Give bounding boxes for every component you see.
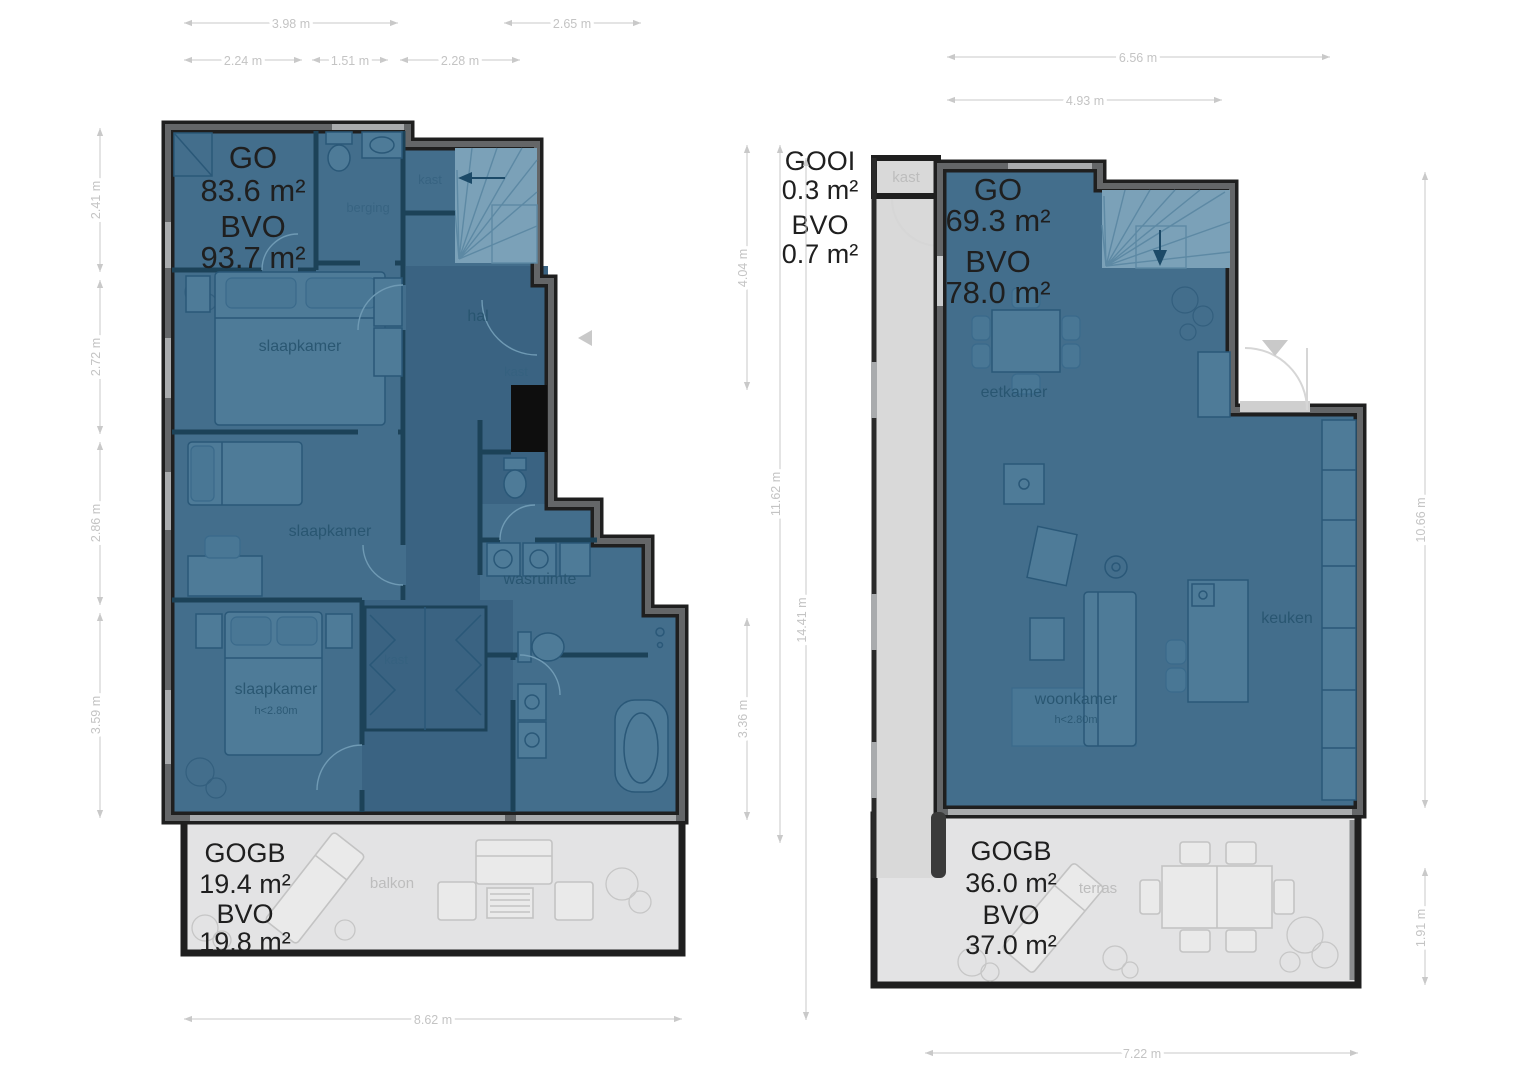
gooi-label: GOOI bbox=[785, 146, 856, 176]
left-go-label: GO bbox=[229, 140, 277, 175]
dim-224: 2.24 m bbox=[224, 54, 262, 68]
right-bvo-value: 78.0 m² bbox=[945, 275, 1050, 310]
dim-722: 7.22 m bbox=[1123, 1047, 1161, 1061]
gooi-area-labels: GOOI 0.3 m² BVO 0.7 m² bbox=[782, 146, 859, 269]
closet-top-label: kast bbox=[418, 172, 442, 187]
terrace-label: terras bbox=[1079, 880, 1117, 897]
storage-label: berging bbox=[346, 200, 389, 215]
gallery-wall-end bbox=[931, 812, 946, 878]
balcony: balkon GOGB 19.4 m² BVO 19.8 m² bbox=[184, 820, 682, 957]
dim-151: 1.51 m bbox=[331, 54, 369, 68]
living-label: woonkamer bbox=[1034, 691, 1118, 708]
laundry-label: wasruimte bbox=[503, 571, 577, 588]
balcony-bvo-label: BVO bbox=[216, 899, 273, 929]
dim-862: 8.62 m bbox=[414, 1013, 452, 1027]
balcony-label: balkon bbox=[370, 875, 414, 892]
left-go-value: 83.6 m² bbox=[200, 173, 305, 208]
dim-656: 6.56 m bbox=[1119, 51, 1157, 65]
dim-228: 2.28 m bbox=[441, 54, 479, 68]
dim-336: 3.36 m bbox=[736, 700, 750, 738]
floorplan-canvas: balkon GOGB 19.4 m² BVO 19.8 m² bbox=[0, 0, 1527, 1080]
hallway-lower bbox=[406, 504, 480, 600]
shaft bbox=[511, 385, 547, 452]
closet-shaft-label: kast bbox=[504, 364, 528, 379]
dim-286: 2.86 m bbox=[89, 504, 103, 542]
bedroom3-label: slaapkamer bbox=[235, 681, 318, 698]
closet-wardrobe-label: kast bbox=[384, 652, 408, 667]
entrance-arrow-left-plan bbox=[578, 330, 592, 346]
wall-cabinet bbox=[1198, 352, 1230, 417]
dim-1066: 10.66 m bbox=[1414, 497, 1428, 542]
entrance-arrow-right-plan bbox=[1262, 340, 1288, 356]
balcony-gogb-value: 19.4 m² bbox=[199, 869, 291, 899]
terrace-gogb-label: GOGB bbox=[970, 836, 1051, 866]
terrace: terras GOGB 36.0 m² BVO 37.0 m² bbox=[874, 815, 1358, 985]
hall-label: hal bbox=[467, 308, 488, 325]
dim-1441: 14.41 m bbox=[795, 597, 809, 642]
floorplan-svg: balkon GOGB 19.4 m² BVO 19.8 m² bbox=[0, 0, 1527, 1080]
stairs-right bbox=[1102, 190, 1230, 268]
gallery: kast bbox=[874, 158, 940, 878]
dim-404: 4.04 m bbox=[736, 249, 750, 287]
left-bvo-label: BVO bbox=[220, 209, 285, 244]
dim-493: 4.93 m bbox=[1066, 94, 1104, 108]
bedroom3-height-label: h<2.80m bbox=[254, 705, 297, 717]
dim-359: 3.59 m bbox=[89, 696, 103, 734]
gooi-bvo-label: BVO bbox=[791, 210, 848, 240]
kitchen-label: keuken bbox=[1261, 610, 1313, 627]
bedroom2-bed bbox=[188, 442, 302, 505]
dim-1162: 11.62 m bbox=[769, 472, 783, 516]
dim-272: 2.72 m bbox=[89, 338, 103, 376]
living-height-label: h<2.80m bbox=[1054, 714, 1097, 726]
balcony-gogb-label: GOGB bbox=[204, 838, 285, 868]
right-go-label: GO bbox=[974, 172, 1022, 207]
stairs bbox=[455, 148, 537, 263]
gooi-value: 0.3 m² bbox=[782, 175, 859, 205]
dim-241: 2.41 m bbox=[89, 181, 103, 219]
gallery-floor bbox=[874, 196, 940, 878]
dim-191: 1.91 m bbox=[1414, 909, 1428, 947]
wardrobe bbox=[365, 607, 486, 730]
bedroom1-label: slaapkamer bbox=[259, 338, 342, 355]
left-floor-plan: balkon GOGB 19.4 m² BVO 19.8 m² bbox=[168, 127, 682, 957]
gooi-bvo-value: 0.7 m² bbox=[782, 239, 859, 269]
balcony-area-labels: GOGB 19.4 m² BVO 19.8 m² bbox=[199, 838, 291, 957]
dim-265: 2.65 m bbox=[553, 17, 591, 31]
dining-label: eetkamer bbox=[981, 384, 1048, 401]
bedroom2-label: slaapkamer bbox=[289, 523, 372, 540]
gallery-closet-label: kast bbox=[892, 169, 920, 186]
left-bvo-value: 93.7 m² bbox=[200, 240, 305, 275]
balcony-bvo-value: 19.8 m² bbox=[199, 927, 291, 957]
right-floor-plan: terras GOGB 36.0 m² BVO 37.0 m² kast bbox=[782, 146, 1360, 985]
right-go-value: 69.3 m² bbox=[945, 203, 1050, 238]
entry-notch bbox=[1240, 340, 1310, 412]
right-bvo-label: BVO bbox=[965, 244, 1030, 279]
terrace-bvo-label: BVO bbox=[982, 900, 1039, 930]
wc-toilet bbox=[504, 458, 526, 498]
dim-398: 3.98 m bbox=[272, 17, 310, 31]
terrace-bvo-value: 37.0 m² bbox=[965, 930, 1057, 960]
terrace-gogb-value: 36.0 m² bbox=[965, 868, 1057, 898]
